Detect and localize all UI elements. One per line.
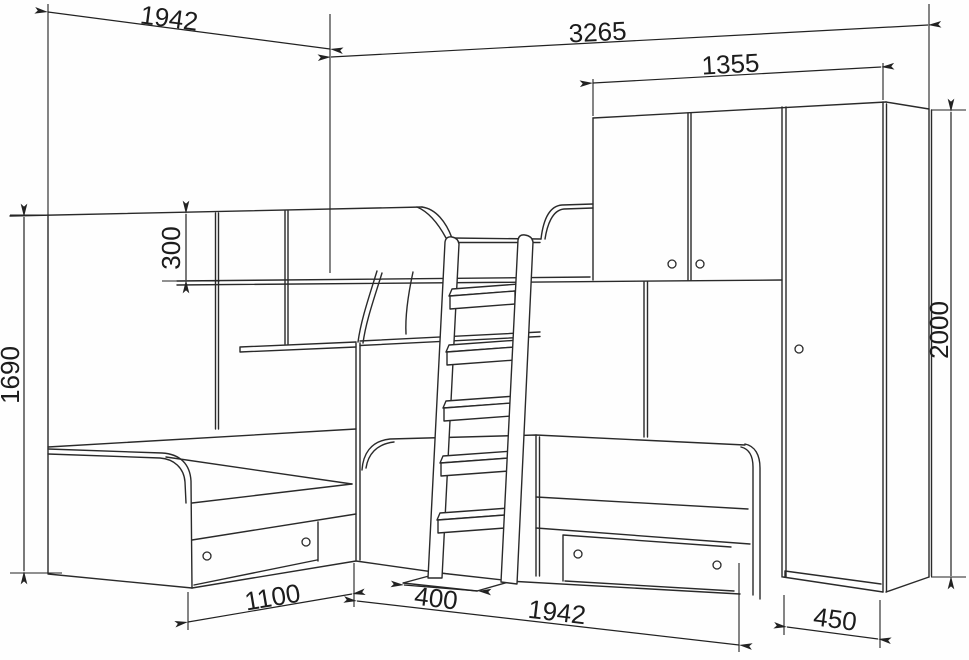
wardrobe-door-handle [795,345,803,353]
dimension-labels: 1942 3265 1355 300 1690 2000 1100 400 19… [0,0,954,637]
left-bed-drawer [194,522,318,585]
extension-lines [10,4,966,652]
back-wall-joint [644,282,648,437]
left-bed-footboard [48,449,192,588]
dim-1942-bottom-label: 1942 [527,594,588,630]
wardrobe-top-edge [593,102,886,118]
right-bed-mattress-lines [536,497,750,544]
wall-joint [216,213,219,429]
corner-backrest-inner [366,442,394,468]
right-headboard-inner [741,447,753,595]
dimension-lines [24,12,951,645]
cabinet-door-divider [688,113,691,280]
dim-1690-label: 1690 [0,346,25,404]
wall-joint-2 [285,211,288,344]
dim-line-3265 [331,25,928,57]
cabinet-door-handle-left [668,260,676,268]
technical-drawing-canvas: 1942 3265 1355 300 1690 2000 1100 400 19… [0,0,969,660]
dim-1942-top-label: 1942 [139,0,200,37]
dim-450-label: 450 [812,601,859,636]
rail-step-curve [422,207,452,238]
wardrobe-side-bottom [886,577,929,592]
left-bed-footboard-bottom [48,574,192,588]
corner-column-edge [356,343,360,560]
left-drawer-handle-1 [203,552,211,560]
desk-shelf [240,342,356,352]
dim-300-label: 300 [156,226,186,269]
floor-edge [356,561,740,594]
left-bed-mattress-front [192,484,352,503]
rail-step-curve-inner [417,207,446,238]
dim-400-label: 400 [413,581,460,616]
wardrobe-column-right-edge [883,102,887,592]
wardrobe-top-bevel [886,102,929,109]
ladder [403,235,533,591]
shelf-bracket [406,272,413,334]
wardrobe-column-left-edge [782,107,786,577]
right-bed-drawer [563,535,734,591]
desk-curved-support [358,271,382,343]
right-drawer-handle-1 [574,550,582,558]
right-drawer-handle-2 [713,561,721,569]
bed-back-edge [362,435,745,470]
wall-bottom-edge [48,429,356,447]
bunk-headboard-curve-inner [545,208,593,239]
right-bed-left-edge [536,435,540,576]
dim-1355-label: 1355 [701,47,760,80]
left-bed-mattress-back [166,457,352,484]
bunk-bed-dimension-diagram: 1942 3265 1355 300 1690 2000 1100 400 19… [0,0,969,660]
left-bed-base-top [192,514,356,540]
left-bed-footboard-inner [48,454,186,503]
left-drawer-handle-2 [302,538,310,546]
dim-3265-label: 3265 [568,16,627,49]
wardrobe-plinth [783,571,883,592]
dim-2000-label: 2000 [924,301,954,359]
cabinet-door-handle-right [696,260,704,268]
dim-1100-label: 1100 [242,578,302,617]
